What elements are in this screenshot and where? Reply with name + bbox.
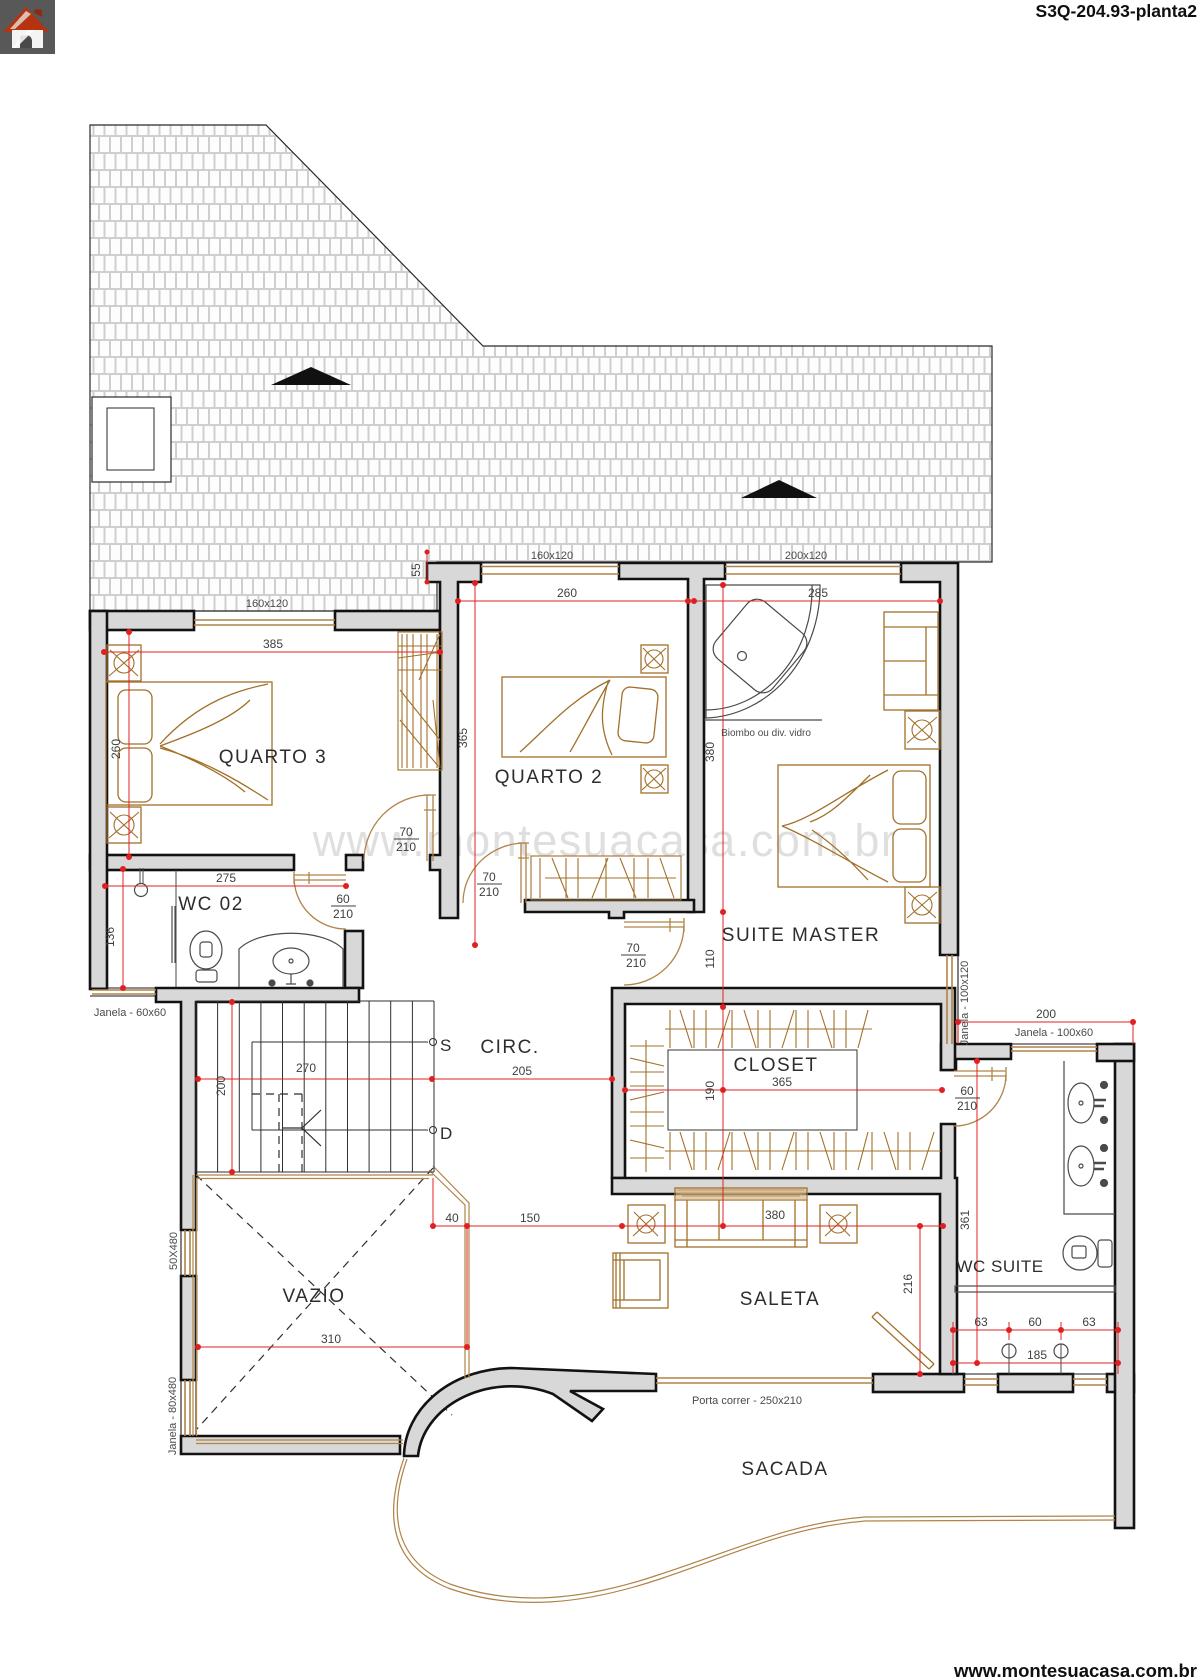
svg-text:361: 361	[958, 1210, 972, 1230]
svg-text:40: 40	[445, 1211, 459, 1225]
svg-text:210: 210	[626, 956, 646, 970]
svg-text:WC SUITE: WC SUITE	[956, 1257, 1043, 1276]
svg-text:D: D	[440, 1124, 452, 1143]
svg-text:SALETA: SALETA	[740, 1289, 820, 1310]
svg-text:55: 55	[409, 563, 423, 577]
svg-text:380: 380	[765, 1208, 785, 1222]
svg-text:www.montesuacasa.com.br: www.montesuacasa.com.br	[953, 1660, 1197, 1680]
svg-text:70: 70	[482, 870, 496, 884]
svg-text:190: 190	[703, 1081, 717, 1101]
svg-text:QUARTO 2: QUARTO 2	[495, 767, 603, 788]
svg-text:CIRC.: CIRC.	[480, 1037, 539, 1058]
svg-text:200: 200	[1036, 1007, 1056, 1021]
svg-text:200: 200	[214, 1076, 228, 1096]
svg-text:VAZIO: VAZIO	[282, 1286, 345, 1307]
svg-text:310: 310	[321, 1332, 341, 1346]
svg-text:60: 60	[336, 892, 350, 906]
svg-text:Biombo ou div. vidro: Biombo ou div. vidro	[721, 728, 811, 739]
svg-text:260: 260	[109, 739, 123, 759]
svg-text:63: 63	[1082, 1315, 1096, 1329]
svg-text:380: 380	[703, 742, 717, 762]
svg-text:70: 70	[626, 941, 640, 955]
svg-text:Porta correr - 250x210: Porta correr - 250x210	[692, 1395, 802, 1407]
svg-text:SUITE MASTER: SUITE MASTER	[722, 925, 880, 946]
svg-text:285: 285	[808, 586, 828, 600]
svg-text:136: 136	[103, 927, 117, 947]
svg-text:63: 63	[974, 1315, 988, 1329]
svg-text:60: 60	[1028, 1315, 1042, 1329]
svg-text:50X480: 50X480	[168, 1232, 180, 1270]
svg-text:210: 210	[333, 907, 353, 921]
svg-text:160x120: 160x120	[246, 598, 288, 610]
svg-text:365: 365	[456, 728, 470, 748]
svg-text:Janela - 80x480: Janela - 80x480	[167, 1377, 179, 1455]
svg-text:QUARTO 3: QUARTO 3	[219, 747, 327, 768]
svg-text:110: 110	[703, 949, 717, 968]
svg-text:200x120: 200x120	[785, 550, 827, 562]
svg-text:70: 70	[399, 825, 413, 839]
svg-text:210: 210	[396, 840, 416, 854]
svg-text:CLOSET: CLOSET	[733, 1055, 818, 1076]
svg-text:Janela - 100x120: Janela - 100x120	[959, 961, 971, 1045]
svg-text:S: S	[440, 1036, 451, 1055]
svg-text:210: 210	[479, 885, 499, 899]
svg-text:275: 275	[216, 871, 236, 885]
svg-text:270: 270	[296, 1061, 316, 1075]
svg-text:160x120: 160x120	[531, 550, 573, 562]
svg-text:WC 02: WC 02	[178, 894, 244, 915]
svg-text:Janela - 60x60: Janela - 60x60	[94, 1007, 166, 1019]
svg-text:S3Q-204.93-planta2: S3Q-204.93-planta2	[1036, 1, 1198, 21]
svg-text:60: 60	[960, 1084, 974, 1098]
svg-text:210: 210	[957, 1099, 977, 1113]
svg-text:SACADA: SACADA	[741, 1459, 828, 1480]
svg-text:185: 185	[1027, 1348, 1047, 1362]
svg-text:216: 216	[901, 1274, 915, 1294]
svg-text:Janela - 100x60: Janela - 100x60	[1015, 1027, 1093, 1039]
svg-text:260: 260	[557, 586, 577, 600]
svg-text:365: 365	[772, 1075, 792, 1089]
svg-text:150: 150	[520, 1211, 540, 1225]
svg-text:205: 205	[512, 1064, 532, 1078]
svg-text:385: 385	[263, 637, 283, 651]
